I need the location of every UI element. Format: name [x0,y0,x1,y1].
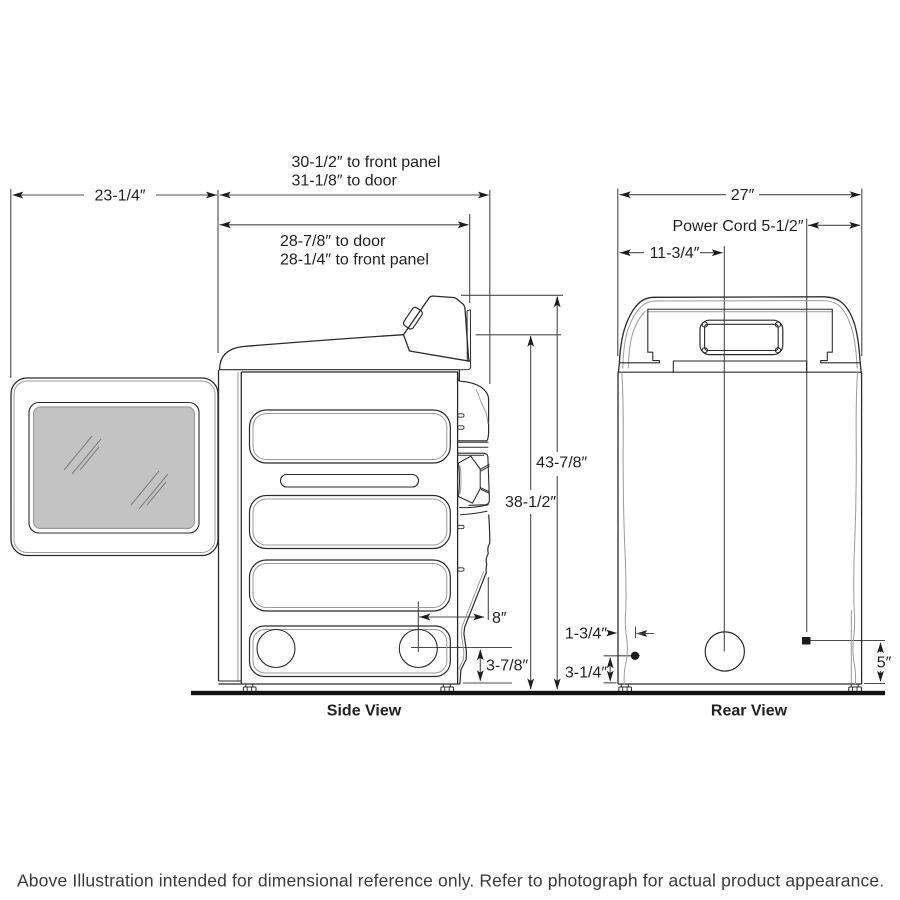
svg-text:23-1/4″: 23-1/4″ [94,188,145,205]
svg-text:43-7/8″: 43-7/8″ [536,455,587,472]
svg-text:5″: 5″ [877,655,892,672]
svg-text:Rear View: Rear View [711,702,788,719]
svg-text:Above Illustration intended fo: Above Illustration intended for dimensio… [17,871,884,891]
svg-text:11-3/4″: 11-3/4″ [650,245,700,262]
svg-text:8″: 8″ [492,610,507,627]
svg-text:3-1/4″: 3-1/4″ [565,665,607,682]
svg-text:27″: 27″ [731,187,755,204]
svg-text:Side View: Side View [327,702,402,719]
svg-text:3-7/8″: 3-7/8″ [486,658,528,675]
svg-text:38-1/2″: 38-1/2″ [505,494,556,511]
svg-text:30-1/2″ to front panel: 30-1/2″ to front panel [292,154,441,171]
svg-text:28-1/4″ to front panel: 28-1/4″ to front panel [280,252,429,269]
svg-text:28-7/8″ to door: 28-7/8″ to door [280,233,386,250]
svg-text:Power Cord 5-1/2″: Power Cord 5-1/2″ [672,218,803,235]
svg-text:1-3/4″: 1-3/4″ [565,626,607,643]
svg-text:31-1/8″ to door: 31-1/8″ to door [292,173,398,190]
